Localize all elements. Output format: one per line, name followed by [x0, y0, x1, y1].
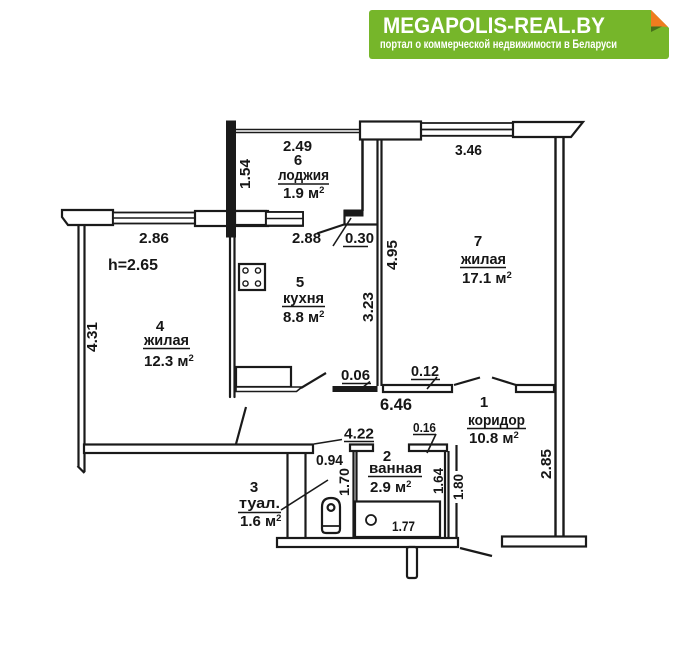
svg-text:7: 7	[474, 233, 482, 250]
svg-text:4.95: 4.95	[384, 240, 401, 270]
svg-text:4.22: 4.22	[344, 426, 374, 443]
svg-text:ванная: ванная	[369, 461, 422, 477]
svg-text:кухня: кухня	[283, 291, 324, 307]
svg-text:1: 1	[480, 394, 488, 411]
svg-text:12.3 м2: 12.3 м2	[144, 353, 194, 370]
svg-text:жилая: жилая	[143, 333, 189, 349]
svg-text:2.86: 2.86	[139, 230, 169, 247]
svg-text:2.85: 2.85	[538, 449, 555, 479]
svg-text:17.1 м2: 17.1 м2	[462, 270, 512, 287]
svg-text:1.6 м2: 1.6 м2	[240, 513, 281, 530]
svg-text:1.9 м2: 1.9 м2	[283, 185, 324, 202]
svg-text:жилая: жилая	[460, 252, 506, 268]
svg-text:3.23: 3.23	[360, 292, 377, 322]
svg-text:8.8 м2: 8.8 м2	[283, 309, 324, 326]
svg-text:туал.: туал.	[239, 496, 280, 512]
svg-text:2.9 м2: 2.9 м2	[370, 479, 411, 496]
svg-text:10.8 м2: 10.8 м2	[469, 430, 519, 447]
svg-text:0.16: 0.16	[413, 420, 436, 435]
svg-text:3: 3	[250, 479, 258, 496]
svg-text:коридор: коридор	[468, 413, 525, 429]
svg-text:MEGAPOLIS-REAL.BY: MEGAPOLIS-REAL.BY	[383, 13, 605, 38]
svg-text:0.06: 0.06	[341, 367, 370, 384]
svg-text:1.70: 1.70	[336, 468, 352, 496]
svg-text:1.80: 1.80	[450, 474, 466, 500]
svg-text:3.46: 3.46	[455, 142, 482, 159]
svg-text:0.94: 0.94	[316, 452, 344, 469]
svg-text:портал о коммерческой недвижим: портал о коммерческой недвижимости в Бел…	[380, 37, 617, 51]
svg-text:1.54: 1.54	[237, 158, 254, 189]
svg-text:4.31: 4.31	[84, 322, 101, 352]
svg-text:1.77: 1.77	[392, 518, 415, 534]
svg-text:6: 6	[294, 152, 302, 169]
svg-text:5: 5	[296, 274, 304, 291]
svg-text:2.88: 2.88	[292, 230, 321, 247]
svg-text:0.30: 0.30	[345, 230, 374, 247]
svg-text:1.64: 1.64	[430, 468, 446, 494]
svg-text:h=2.65: h=2.65	[108, 257, 158, 274]
svg-text:0.12: 0.12	[411, 363, 439, 380]
svg-text:лоджия: лоджия	[278, 168, 329, 184]
svg-text:6.46: 6.46	[380, 396, 412, 414]
